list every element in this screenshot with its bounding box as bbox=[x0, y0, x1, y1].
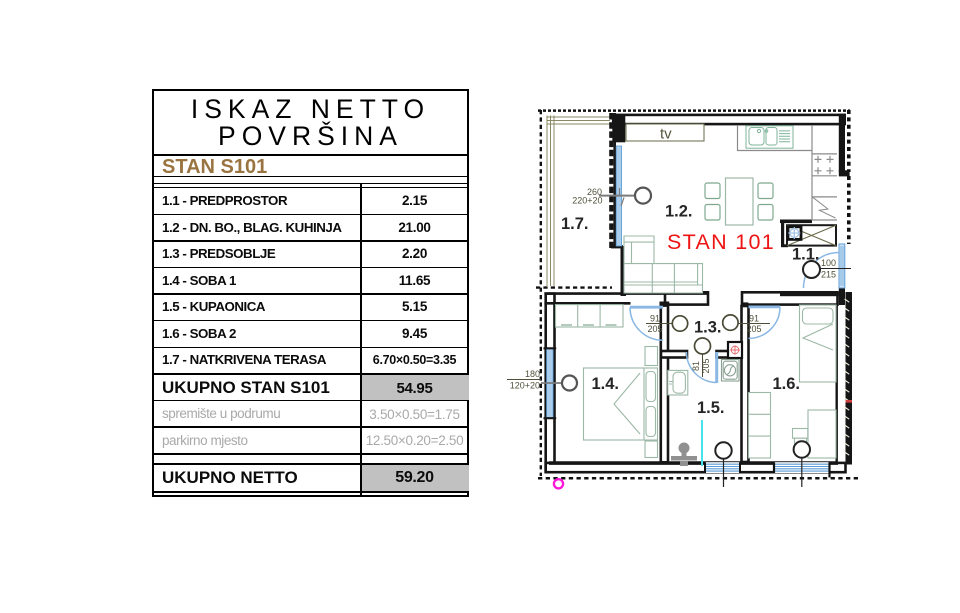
svg-text:205: 205 bbox=[701, 358, 711, 373]
svg-text:1.2.: 1.2. bbox=[665, 203, 693, 221]
svg-text:180: 180 bbox=[525, 369, 540, 379]
svg-text:1.1.: 1.1. bbox=[792, 246, 820, 264]
svg-text:STAN 101: STAN 101 bbox=[667, 230, 775, 254]
svg-text:100: 100 bbox=[821, 258, 836, 268]
svg-text:91: 91 bbox=[650, 314, 660, 324]
svg-text:1.3.: 1.3. bbox=[694, 319, 722, 337]
svg-text:1.7.: 1.7. bbox=[561, 215, 589, 233]
svg-text:91: 91 bbox=[749, 314, 759, 324]
svg-text:1.6.: 1.6. bbox=[773, 375, 801, 393]
svg-text:220+20: 220+20 bbox=[572, 196, 602, 206]
svg-text:205: 205 bbox=[746, 324, 761, 334]
svg-text:1.4.: 1.4. bbox=[592, 375, 620, 393]
svg-text:215: 215 bbox=[821, 270, 836, 280]
svg-text:120+20: 120+20 bbox=[510, 381, 540, 391]
svg-text:1.5.: 1.5. bbox=[697, 399, 725, 417]
svg-text:205: 205 bbox=[647, 324, 662, 334]
svg-text:81: 81 bbox=[691, 361, 701, 371]
svg-text:tv: tv bbox=[660, 126, 672, 143]
